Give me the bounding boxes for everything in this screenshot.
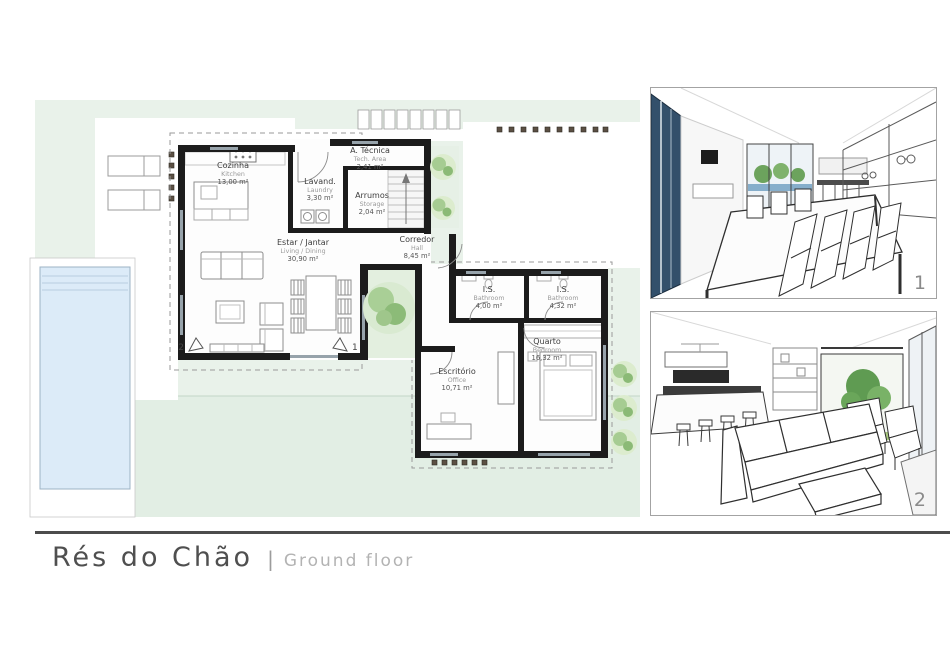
render-2-frame: 2 [650,311,937,516]
shrub [611,395,637,421]
render-2-image [651,312,936,515]
floor-plan: 2 1 [0,0,650,530]
title-english: Ground floor [284,551,414,571]
swimming-pool [40,267,130,489]
view-marker-2: 2 [178,343,184,353]
tree [431,196,455,220]
tree [430,154,456,180]
courtyard-tree [363,282,415,334]
sheet-title: Rés do Chão | Ground floor [52,542,414,573]
presentation-sheet: { "footer": { "title_pt": "Rés do Chão",… [0,0,950,671]
view-marker-1: 1 [352,343,358,353]
render-1-label: 1 [914,272,926,294]
render-2-label: 2 [914,489,926,511]
title-portuguese: Rés do Chão [52,542,253,573]
staircase [388,170,424,228]
render-1-frame: 1 [650,87,937,299]
tv [701,150,718,164]
render-1-image [651,88,936,298]
title-separator: | [267,547,274,571]
footer-divider-line [35,531,950,534]
shrub [611,361,637,387]
shrub [611,429,637,455]
